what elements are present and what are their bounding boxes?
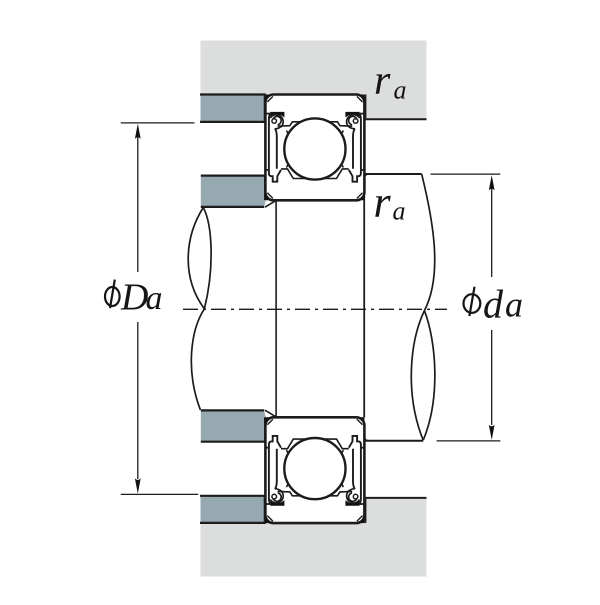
- svg-text:d: d: [483, 281, 504, 326]
- svg-text:r: r: [374, 178, 392, 227]
- svg-text:a: a: [505, 285, 523, 325]
- svg-text:D: D: [120, 276, 148, 318]
- svg-text:a: a: [146, 280, 163, 317]
- svg-text:a: a: [394, 76, 407, 105]
- svg-text:r: r: [374, 58, 391, 104]
- svg-text:a: a: [393, 197, 406, 226]
